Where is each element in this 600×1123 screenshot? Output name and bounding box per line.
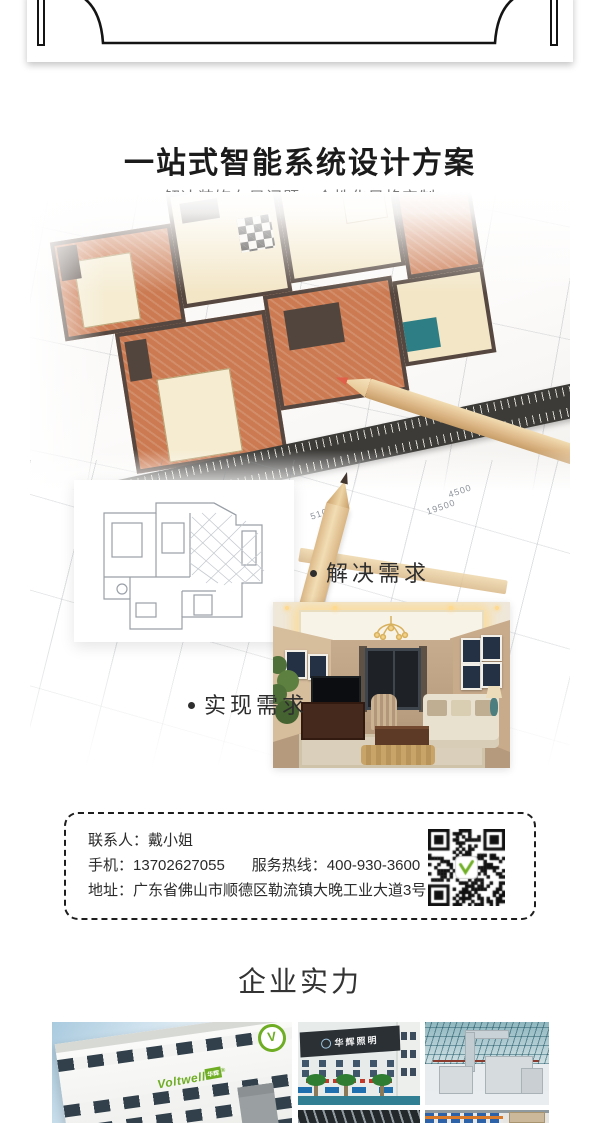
factory-building-photo: Voltwell华辉® V — [52, 1022, 292, 1123]
promo-page: 一站式智能系统设计方案 解决装饰布局问题，个性化风格定制 — [0, 0, 600, 1123]
page-title: 一站式智能系统设计方案 — [0, 138, 600, 182]
floorplan-lineart-header — [27, 0, 573, 62]
sign-pillar — [237, 1083, 278, 1123]
roof-sign-text: 华辉照明 — [334, 1033, 378, 1049]
hero-photo-floorplan — [30, 192, 570, 490]
label-solve-need: 解决需求 — [310, 556, 430, 588]
picture-frame — [461, 638, 482, 664]
address-label: 地址： — [88, 882, 133, 899]
contact-address-row: 地址：广东省佛山市顺德区勒流镇大晚工业大道3号 — [88, 878, 426, 903]
coating-machine — [521, 1068, 543, 1094]
bullet-dot — [310, 570, 317, 577]
contact-person-row: 联系人：戴小姐 — [88, 828, 426, 853]
bw-floorplan-drawing — [86, 491, 282, 631]
window-row — [302, 1060, 396, 1067]
palm-tree — [380, 1083, 384, 1097]
photo-fade — [30, 192, 570, 490]
contact-phone-row: 手机：13702627055服务热线：400-930-3600 — [88, 853, 426, 878]
chandelier — [371, 616, 411, 642]
picture-frame — [481, 635, 502, 661]
roof-sign: 华辉照明 — [300, 1026, 401, 1058]
contact-card: 联系人：戴小姐 手机：13702627055服务热线：400-930-3600 … — [64, 812, 536, 920]
workshop-photo — [298, 1110, 420, 1123]
contact-person-label: 联系人： — [88, 832, 148, 849]
contact-info: 联系人：戴小姐 手机：13702627055服务热线：400-930-3600 … — [88, 828, 426, 903]
picture-frame — [481, 662, 502, 688]
warehouse-photo — [425, 1110, 549, 1123]
palm-tree — [344, 1083, 348, 1097]
coating-machine — [439, 1066, 473, 1094]
hotline-number: 400-930-3600 — [327, 857, 420, 874]
phone-number: 13702627055 — [133, 857, 225, 874]
contact-person: 戴小姐 — [148, 832, 193, 849]
ottoman — [361, 745, 435, 765]
label-realize-need: 实现需求 — [188, 688, 308, 720]
table-lamp — [486, 686, 502, 716]
tv-cabinet — [301, 702, 365, 740]
coffee-table — [375, 726, 429, 746]
door-swing-drawing — [27, 0, 573, 62]
production-line-photo — [425, 1022, 549, 1105]
qr-code — [428, 829, 505, 906]
address-value: 广东省佛山市顺德区勒流镇大晚工业大道3号 — [133, 882, 426, 899]
hotline-label: 服务热线： — [252, 857, 327, 874]
palm-tree — [314, 1083, 318, 1097]
picture-frame — [461, 664, 482, 690]
courtyard-ground — [298, 1096, 420, 1105]
armchair — [371, 694, 397, 730]
living-room-photo — [273, 602, 510, 768]
phone-label: 手机： — [88, 857, 133, 874]
bullet-dot — [188, 702, 195, 709]
sign-logo-icon — [321, 1038, 331, 1049]
bw-floorplan-card — [74, 480, 294, 642]
headquarters-photo: 华辉照明 — [298, 1022, 420, 1105]
section-title-strength: 企业实力 — [0, 960, 600, 1000]
